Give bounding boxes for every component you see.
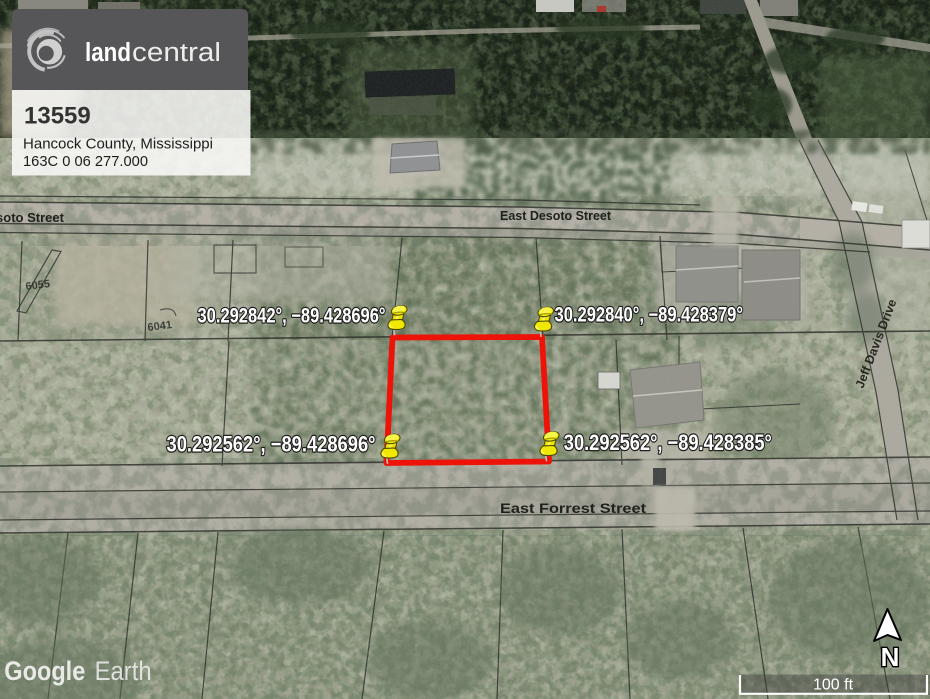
svg-text:30.292840°, −89.428379°: 30.292840°, −89.428379° <box>555 304 744 327</box>
svg-text:Hancock County, Mississippi: Hancock County, Mississippi <box>23 136 213 153</box>
svg-text:land: land <box>85 39 131 67</box>
svg-text:soto Street: soto Street <box>0 211 65 225</box>
svg-text:30.292842°, −89.428696°: 30.292842°, −89.428696° <box>198 305 386 328</box>
svg-text:100 ft: 100 ft <box>813 677 854 694</box>
svg-text:N: N <box>881 642 900 672</box>
svg-text:30.292562°, −89.428696°: 30.292562°, −89.428696° <box>167 432 376 457</box>
svg-text:central: central <box>132 39 221 67</box>
svg-text:East Forrest Street: East Forrest Street <box>500 501 647 516</box>
svg-text:13559: 13559 <box>24 103 91 130</box>
svg-text:East Desoto Street: East Desoto Street <box>500 209 612 223</box>
svg-text:163C 0 06 277.000: 163C 0 06 277.000 <box>23 153 148 170</box>
svg-text:Earth: Earth <box>95 656 152 686</box>
svg-text:Google: Google <box>4 656 85 686</box>
svg-text:30.292562°, −89.428385°: 30.292562°, −89.428385° <box>564 430 772 455</box>
